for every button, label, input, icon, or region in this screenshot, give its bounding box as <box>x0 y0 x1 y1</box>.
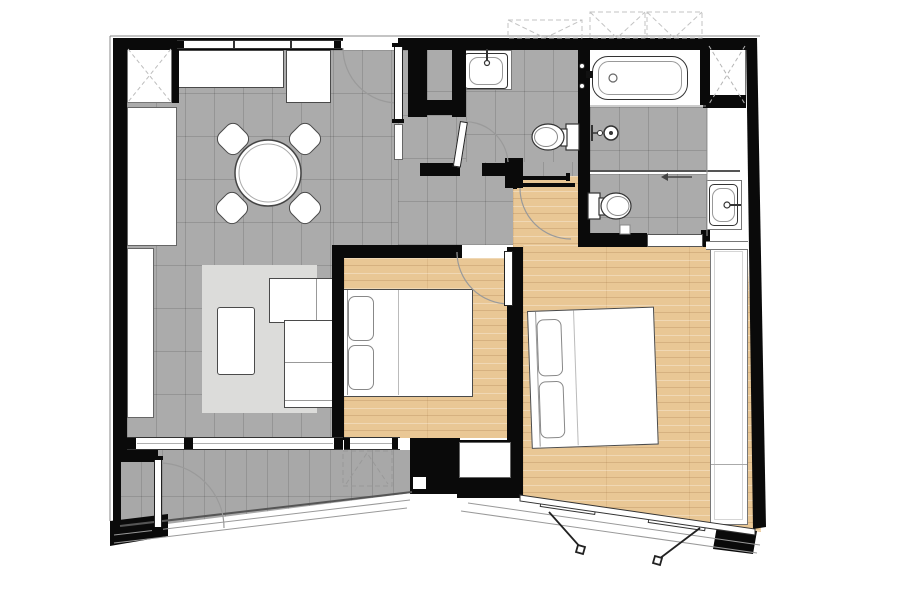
entry-niche-floor <box>427 48 452 100</box>
door-cap <box>152 527 163 531</box>
bedroom2-sliding-door <box>513 176 568 180</box>
bedroom2-wardrobe <box>710 247 748 525</box>
bed2-pillow <box>536 319 563 377</box>
door-cap <box>152 456 163 460</box>
sofa-vertical-section <box>284 320 335 408</box>
balcony-door-leaf <box>154 458 162 529</box>
sliding-door-hook <box>566 173 570 181</box>
window-cap <box>334 41 341 48</box>
bed1 <box>338 289 473 397</box>
vanity-threshold <box>706 241 748 250</box>
bed1-pillow <box>348 296 374 341</box>
wall-bathroom-mid <box>578 38 590 237</box>
ensuite-threshold <box>647 234 703 247</box>
window-mullion <box>233 41 235 48</box>
window-cap <box>184 438 193 449</box>
kitchen-window <box>177 40 343 49</box>
window-cap <box>334 438 343 449</box>
bed1-pillow <box>348 345 374 390</box>
door-cap <box>392 43 404 47</box>
entry-door-leaf <box>394 45 403 121</box>
sofa-seam <box>316 279 317 322</box>
sofa-seam <box>285 362 334 363</box>
living-sliding-window <box>127 437 343 450</box>
wall-notch <box>413 477 426 489</box>
window-track <box>350 443 392 444</box>
window-track <box>137 443 333 444</box>
shower-floor <box>590 107 707 171</box>
wall-closet-divider <box>172 46 179 103</box>
wall-wc-bottom <box>578 233 647 247</box>
washbasin2-bowl <box>712 188 735 222</box>
window-cap <box>127 438 136 449</box>
tv-console <box>127 248 154 418</box>
window-mullion <box>290 41 292 48</box>
wall-vanity-top <box>703 95 746 108</box>
bathtub-inner <box>598 61 682 95</box>
wc-floor <box>590 174 707 235</box>
fridge-unit <box>286 50 331 103</box>
bedroom2-sliding-door-bar <box>520 183 575 187</box>
bed2-sheet-line <box>573 310 579 445</box>
wall-bedroom1-top <box>332 245 462 258</box>
ac-ledge-box <box>459 442 511 478</box>
bedroom1-door-leaf <box>504 251 513 306</box>
wall-entry-column-a <box>408 44 427 117</box>
floor-plan-canvas <box>0 0 900 600</box>
window-cap <box>177 41 184 48</box>
wardrobe-divider <box>711 464 747 465</box>
window-cap <box>344 438 350 449</box>
sofa-seam <box>285 400 334 401</box>
wall-top-right <box>466 38 757 50</box>
door-cap <box>392 119 404 123</box>
roof-dashed-units <box>508 12 702 38</box>
wall-left <box>113 38 127 450</box>
washbasin1-bowl <box>469 57 503 85</box>
bedroom1-balcony-window <box>344 437 400 450</box>
wardrobe-top-left <box>127 48 172 103</box>
window-cap <box>392 438 398 449</box>
bed1-sheet-line <box>398 290 399 395</box>
wall-bedroom1-left <box>332 245 344 440</box>
bed2 <box>527 307 659 449</box>
balcony-floor <box>120 448 413 528</box>
kitchen-counter <box>178 50 284 88</box>
tall-cabinet <box>127 107 177 246</box>
bed2-pillow <box>538 381 565 439</box>
coffee-table <box>217 307 255 375</box>
entry-side-panel <box>394 124 403 160</box>
wall-entry-stub <box>427 100 452 115</box>
wall-entry-column-b <box>452 44 466 117</box>
sofa-horizontal-section <box>269 278 335 323</box>
sliding-door-hook <box>513 181 517 189</box>
wardrobe-inner-line <box>714 251 743 520</box>
